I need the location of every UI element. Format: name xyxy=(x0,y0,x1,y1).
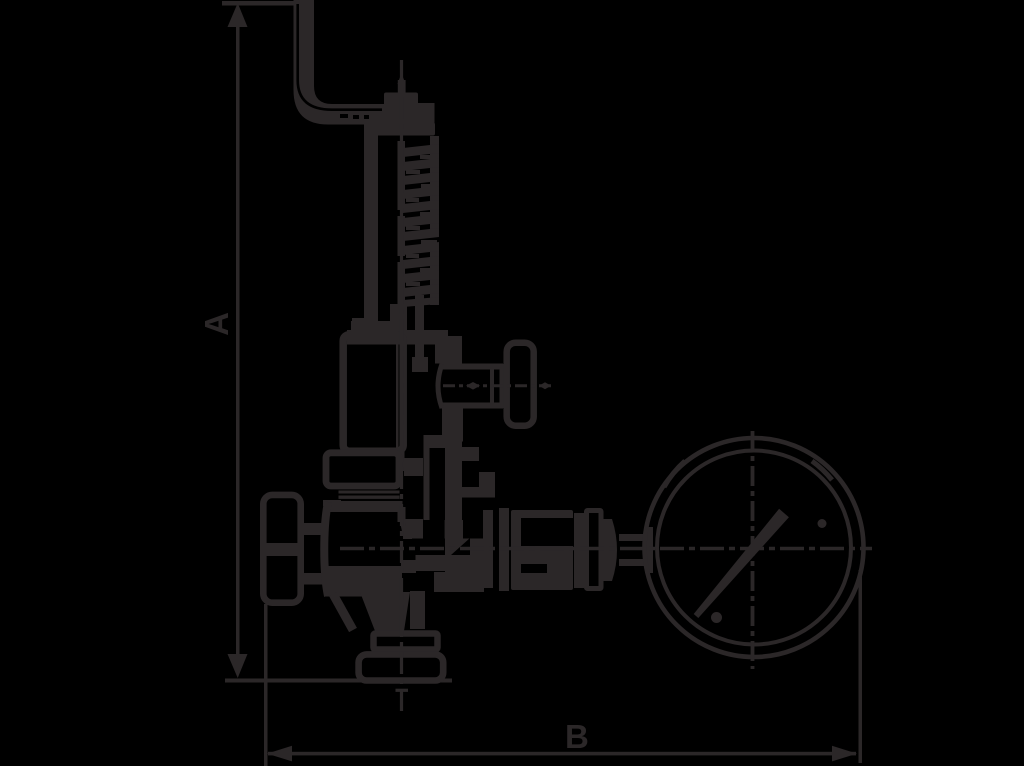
svg-text:A: A xyxy=(198,312,235,336)
svg-text:B: B xyxy=(565,718,589,755)
